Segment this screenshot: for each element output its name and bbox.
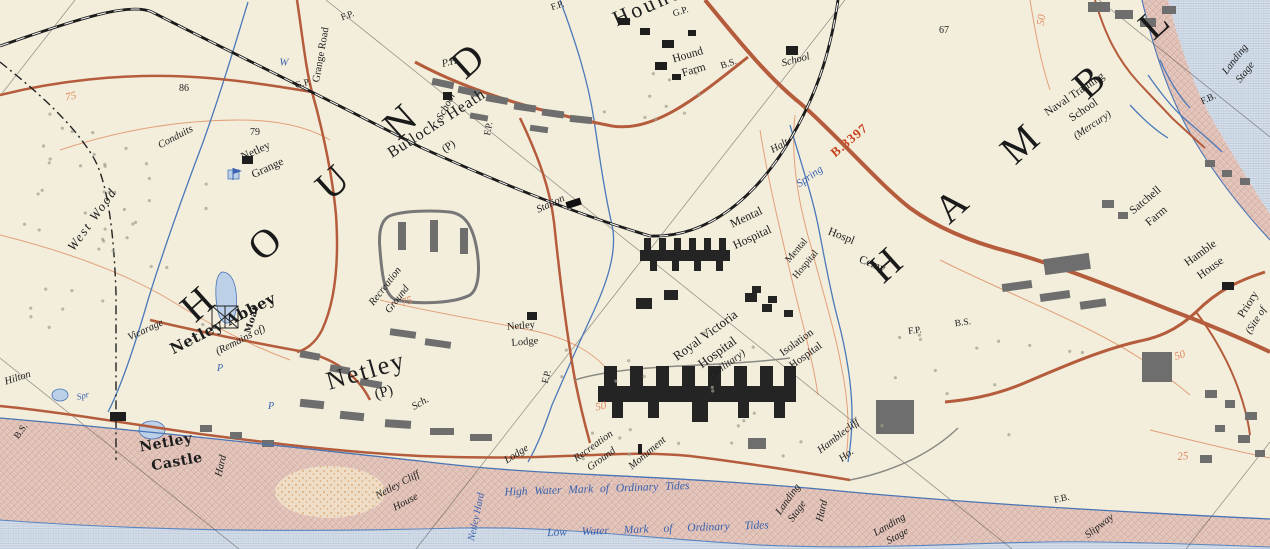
sand-patch — [275, 466, 385, 518]
map-viewport[interactable]: H O U N DH A M B L EHoundNetley(P)Butloc… — [0, 0, 1270, 549]
map-canvas — [0, 0, 1270, 549]
